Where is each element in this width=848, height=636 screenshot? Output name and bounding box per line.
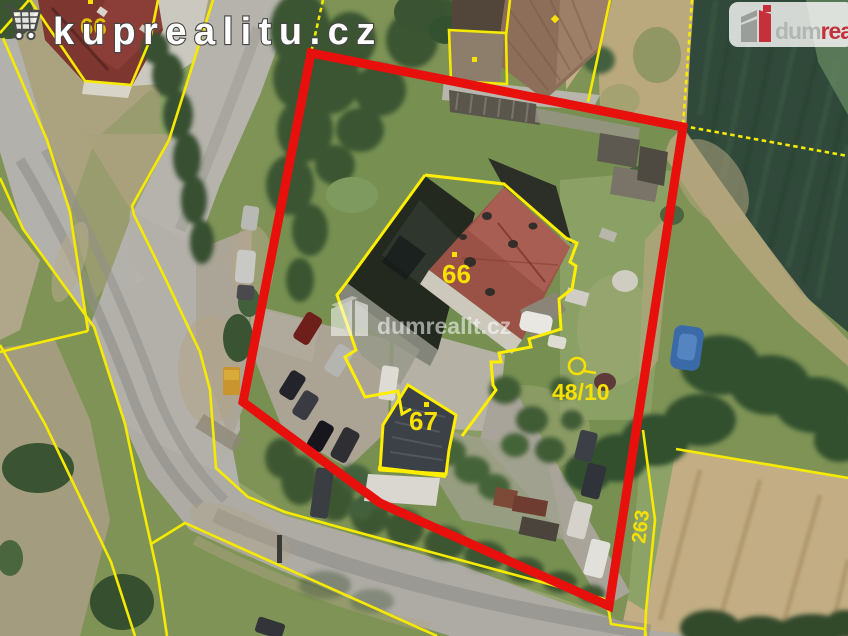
svg-text:48/10: 48/10 (552, 379, 610, 405)
svg-text:dumrealit.cz: dumrealit.cz (377, 313, 511, 339)
svg-text:67: 67 (409, 406, 438, 436)
svg-text:263: 263 (628, 509, 654, 545)
svg-text:66: 66 (442, 259, 471, 289)
svg-text:dumrealit: dumrealit (775, 18, 848, 44)
svg-text:kuprealitu.cz: kuprealitu.cz (53, 11, 383, 53)
